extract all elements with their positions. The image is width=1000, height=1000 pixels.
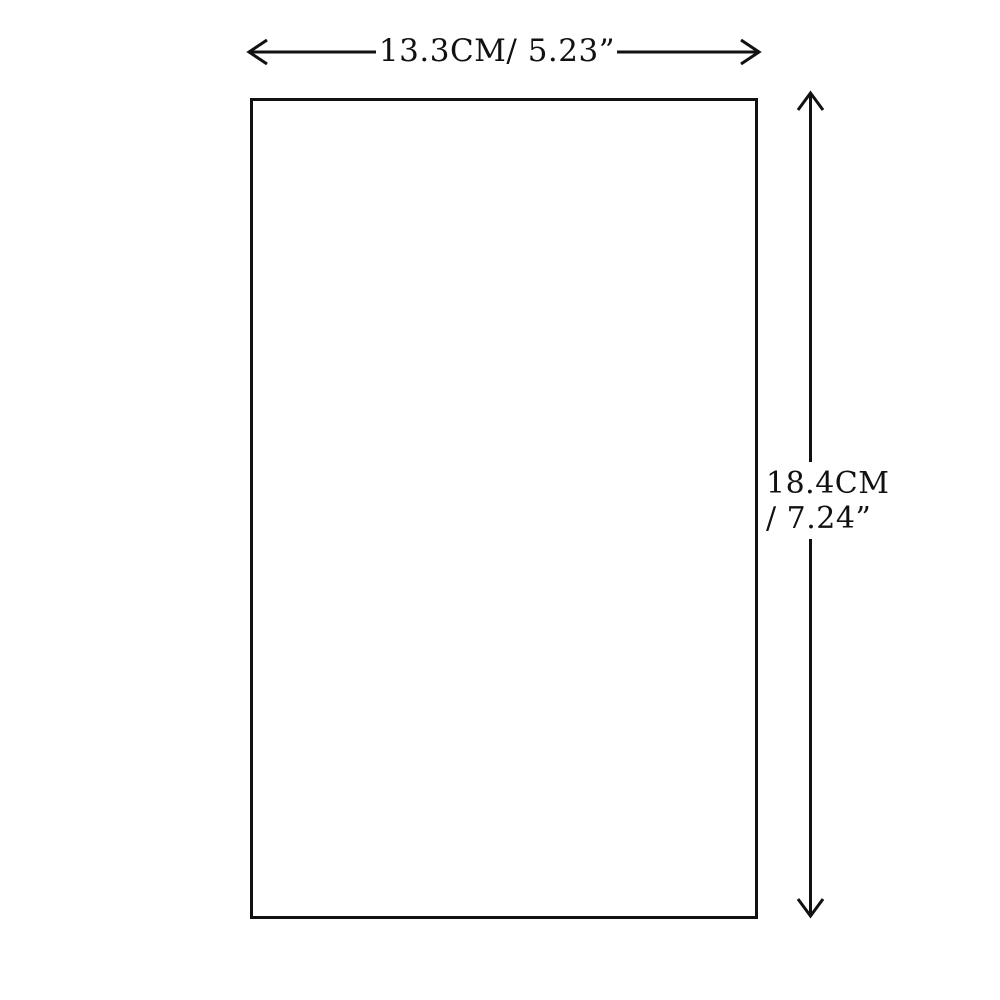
height-dimension-label-line2: / 7.24” bbox=[766, 501, 889, 536]
product-outline-rectangle bbox=[252, 100, 757, 918]
width-dimension-label: 13.3CM/ 5.23” bbox=[377, 33, 617, 69]
height-dimension-label: 18.4CM / 7.24” bbox=[766, 466, 889, 536]
dimension-diagram: 13.3CM/ 5.23” 18.4CM / 7.24” bbox=[0, 0, 1000, 1000]
height-dimension-label-line1: 18.4CM bbox=[766, 466, 889, 501]
diagram-stroke-group bbox=[249, 40, 823, 918]
